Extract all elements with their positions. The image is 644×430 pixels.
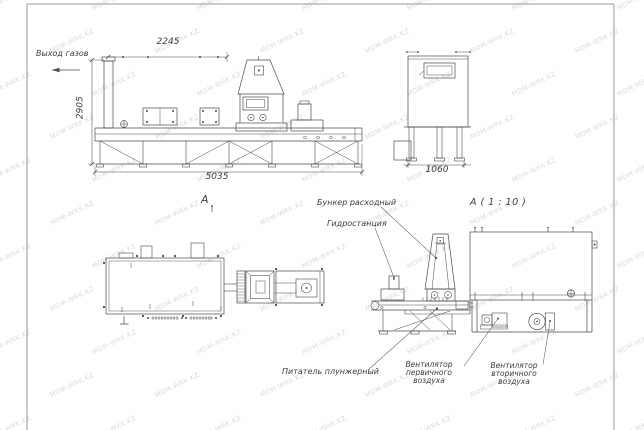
detail-view-linework bbox=[368, 207, 597, 370]
hopper-callout: Бункер расходный bbox=[317, 199, 396, 207]
side-view-top-width-dimension: 2245 bbox=[151, 38, 185, 47]
side-view-total-width-dimension: 5035 bbox=[200, 173, 234, 182]
end-view-width-dimension: 1060 bbox=[420, 166, 454, 175]
primary-air-fan-callout: Вентилятор первичного воздуха bbox=[391, 361, 467, 385]
end-view-linework bbox=[394, 51, 471, 168]
plan-view-label: А bbox=[201, 194, 209, 206]
drawing-sheet: MDM-WRK.KZMDM-WRK.KZMDM-WRK.KZMDM-WRK.KZ… bbox=[0, 0, 644, 430]
hydraulic-station-callout: Гидростанция bbox=[327, 220, 387, 228]
side-view-linework bbox=[52, 52, 364, 176]
plan-view-linework bbox=[103, 205, 324, 324]
side-view-height-dimension: 2905 bbox=[76, 91, 85, 125]
plunger-feeder-callout: Питатель плунжерный bbox=[282, 368, 379, 376]
gas-outlet-label: Выход газов bbox=[36, 50, 88, 58]
secondary-air-fan-callout: Вентилятор вторичного воздуха bbox=[481, 362, 547, 386]
drawing-linework bbox=[0, 0, 644, 430]
detail-view-title: А ( 1 : 10 ) bbox=[470, 198, 526, 208]
